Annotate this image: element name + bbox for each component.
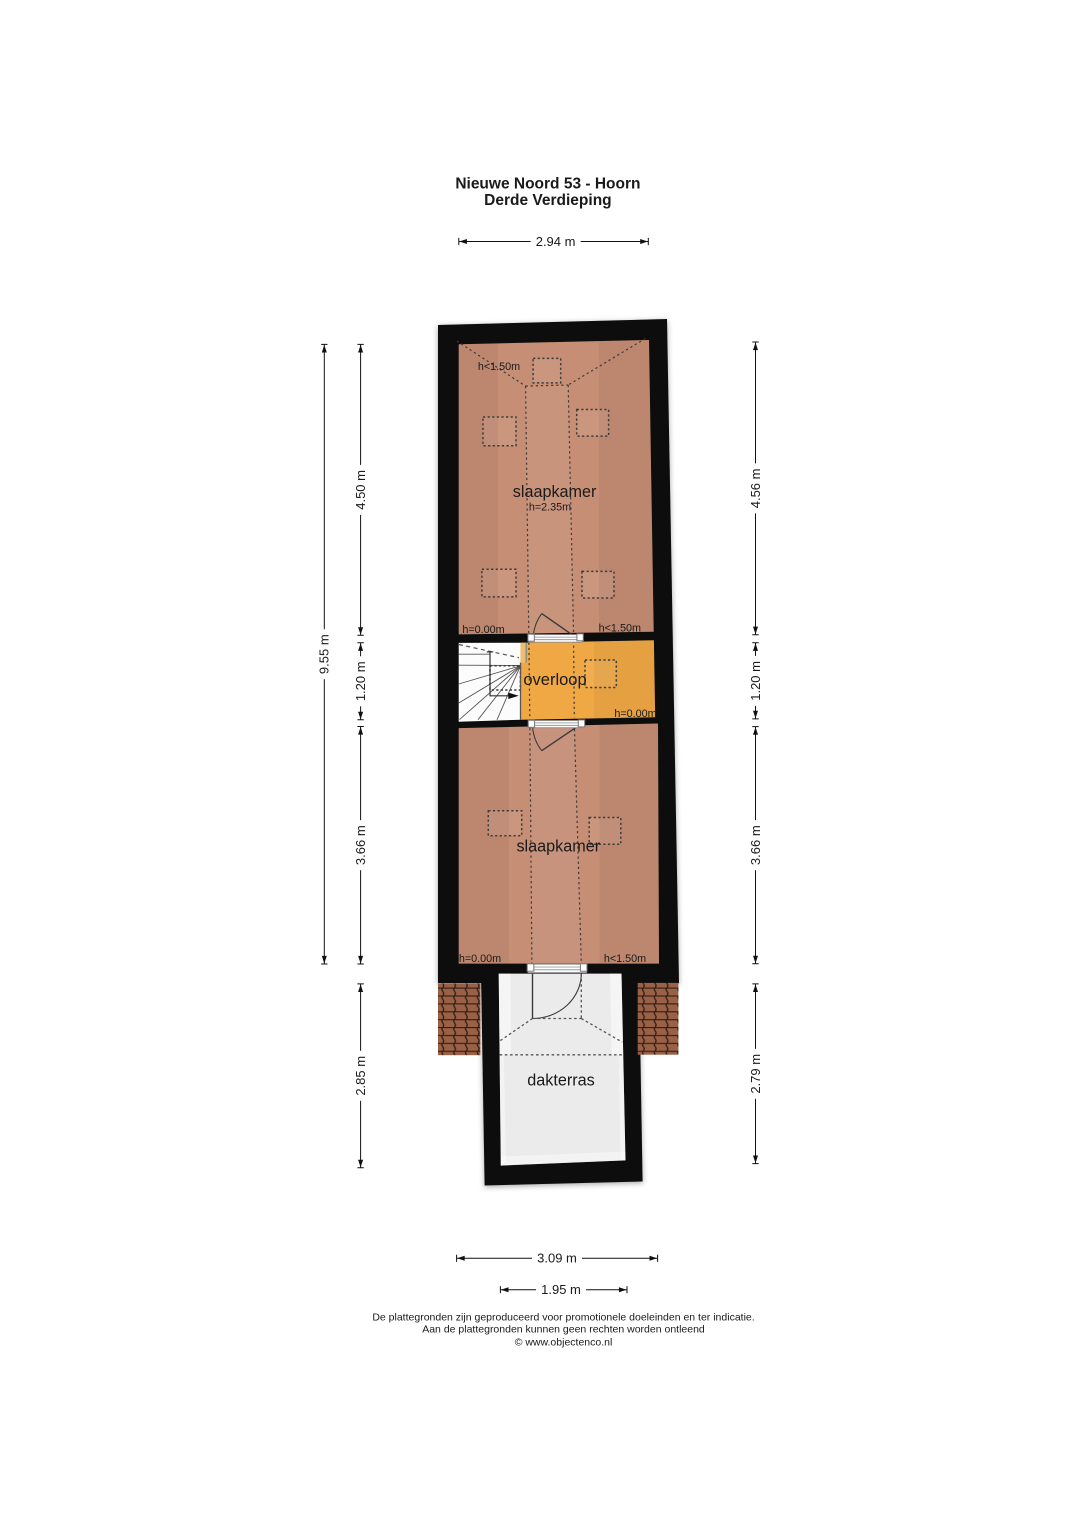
svg-text:h=0.00m: h=0.00m <box>614 708 656 720</box>
svg-text:h<1.50m: h<1.50m <box>478 361 520 373</box>
svg-text:1.20 m: 1.20 m <box>353 661 368 701</box>
svg-text:1.95 m: 1.95 m <box>541 1282 581 1297</box>
svg-text:9.55 m: 9.55 m <box>317 634 332 674</box>
svg-text:4.50 m: 4.50 m <box>353 470 368 510</box>
svg-text:slaapkamer: slaapkamer <box>516 838 600 856</box>
svg-text:2.85 m: 2.85 m <box>353 1056 368 1096</box>
svg-text:De plattegronden zijn geproduc: De plattegronden zijn geproduceerd voor … <box>372 1311 754 1323</box>
svg-text:Nieuwe Noord 53 - Hoorn: Nieuwe Noord 53 - Hoorn <box>455 175 640 192</box>
svg-text:4.56 m: 4.56 m <box>748 469 763 509</box>
svg-text:3.66 m: 3.66 m <box>353 825 368 865</box>
svg-text:dakterras: dakterras <box>527 1072 594 1090</box>
svg-text:2.94 m: 2.94 m <box>536 234 576 249</box>
svg-text:Derde Verdieping: Derde Verdieping <box>484 192 611 209</box>
svg-text:© www.objectenco.nl: © www.objectenco.nl <box>515 1336 613 1348</box>
svg-text:overloop: overloop <box>523 671 586 689</box>
svg-text:h=2.35m: h=2.35m <box>529 501 571 513</box>
svg-text:h<1.50m: h<1.50m <box>604 953 646 965</box>
svg-text:2.79 m: 2.79 m <box>748 1054 763 1094</box>
svg-text:h<1.50m: h<1.50m <box>599 623 641 635</box>
svg-text:h=0.00m: h=0.00m <box>462 624 504 636</box>
svg-text:h=0.00m: h=0.00m <box>459 953 501 965</box>
svg-text:slaapkamer: slaapkamer <box>513 483 597 501</box>
svg-text:3.66 m: 3.66 m <box>748 825 763 865</box>
svg-text:1.20 m: 1.20 m <box>748 661 763 701</box>
svg-text:Aan de plattegronden kunnen ge: Aan de plattegronden kunnen geen rechten… <box>422 1324 705 1336</box>
svg-text:3.09 m: 3.09 m <box>537 1251 577 1266</box>
